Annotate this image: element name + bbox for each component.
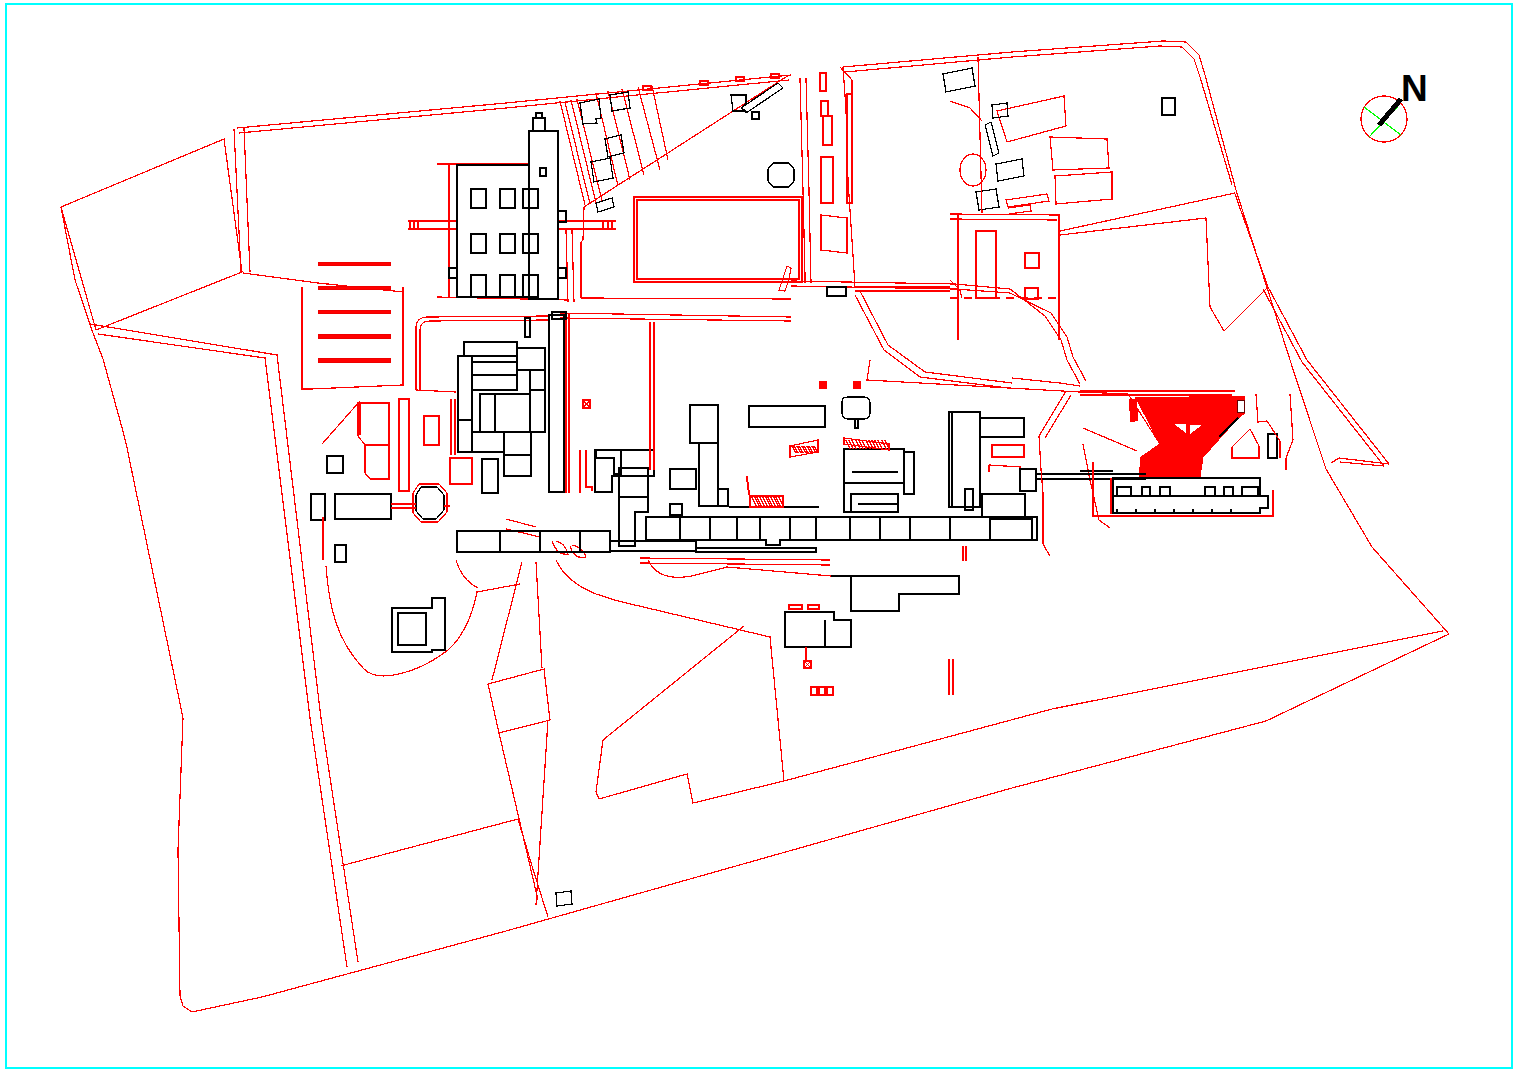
svg-text:N: N [1401,68,1428,109]
